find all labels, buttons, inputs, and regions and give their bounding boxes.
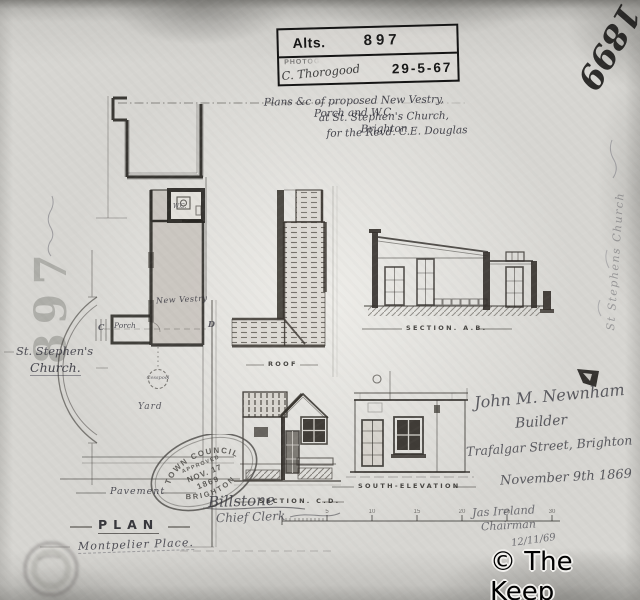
scale-tick-label: 10 [369, 509, 376, 515]
caption-south-elevation: SOUTH-ELEVATION [358, 482, 461, 490]
clerk-signature: Billstone [208, 491, 275, 511]
label-cesspool: Cesspool [143, 375, 173, 381]
church-name-line2: Church. [30, 360, 81, 376]
drawing-layer: 5 10 15 20 25 30 [0, 0, 640, 600]
scale-tick-label: 15 [414, 509, 421, 515]
south-elevation-drawing [332, 371, 476, 487]
alts-label: Alts. [292, 34, 325, 51]
stamp-box-bottom-row: PHOTOG C. Thorogood 29-5-67 [279, 54, 458, 85]
label-pavement: Pavement [110, 486, 165, 497]
label-yard: Yard [138, 402, 163, 412]
section-ab-drawing [362, 229, 554, 329]
alterations-stamp-box: Alts. 897 PHOTOG C. Thorogood 29-5-67 [276, 24, 459, 87]
section-marker-c: C [98, 322, 104, 332]
roof-plan-drawing [232, 186, 337, 377]
caption-section-ab: SECTION. A.B. [406, 324, 487, 332]
clerk-title: Chief Clerk [216, 509, 286, 525]
stencil-number: 897 [26, 224, 77, 364]
scale-tick-label: 20 [459, 509, 466, 515]
scale-tick-label: 5 [325, 509, 329, 515]
scanned-architectural-drawing: 5 10 15 20 25 30 [0, 0, 640, 600]
section-marker-d: D [208, 319, 215, 329]
photo-date: 29-5-67 [392, 60, 453, 77]
label-wc: W.C. [173, 203, 186, 210]
faint-circular-stamp [25, 543, 77, 595]
archive-watermark: © The Keep [490, 547, 640, 600]
scale-tick-label: 30 [549, 509, 556, 515]
label-porch: Porch [114, 321, 136, 330]
alts-number: 897 [363, 31, 400, 49]
label-plan-title: PLAN [98, 517, 159, 534]
caption-roof: ROOF [268, 360, 298, 368]
church-name-line1: St. Stephen's [16, 344, 93, 358]
